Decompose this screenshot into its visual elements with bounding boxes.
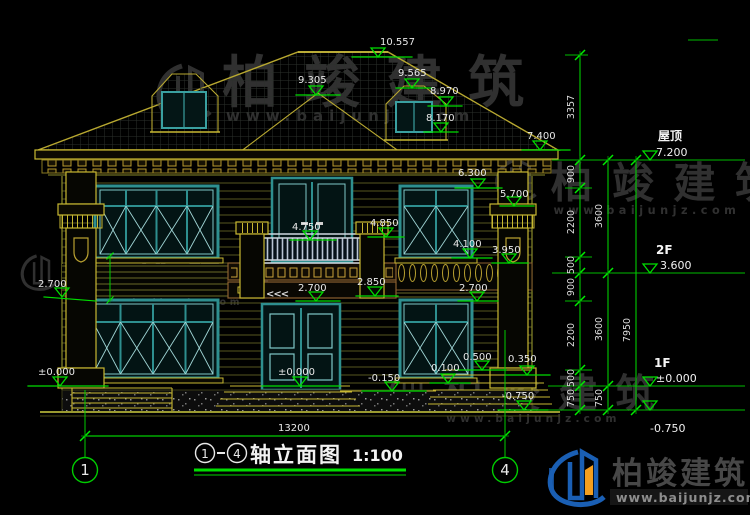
level-dormer-eave: 8.970 xyxy=(430,86,459,97)
level-win2-sill: 4.100 xyxy=(453,239,482,250)
level-roof-label: 屋顶 xyxy=(658,129,682,143)
brand-logo: 柏竣建筑 www.baijunjz.com xyxy=(549,452,750,505)
dim-2200-lower: 2200 xyxy=(566,323,577,347)
level-porch-c: 0.100 xyxy=(431,363,460,374)
axis-bubble-1: 1 xyxy=(80,461,90,479)
drawing-canvas: 柏竣建筑 www.baijunjz.com 柏竣建筑 www.baijunjz.… xyxy=(0,0,750,515)
brand-name: 柏竣建筑 xyxy=(612,456,748,492)
level-roof-value: 7.200 xyxy=(656,146,688,159)
dim-3357: 3357 xyxy=(566,95,577,119)
level-dormer-ridge: 9.565 xyxy=(398,68,427,79)
level-porch-ground: -0.750 xyxy=(502,391,534,402)
level-floor-zero: ±0.000 xyxy=(278,367,315,378)
balcony-pier-left xyxy=(236,222,268,298)
title-scale: 1:100 xyxy=(352,446,403,465)
level-band-right-pier: 2.850 xyxy=(357,277,386,288)
level-terrace: -0.150 xyxy=(368,373,400,384)
dim-500-lower: 500 xyxy=(566,369,577,387)
level-hip-apex: 9.305 xyxy=(298,75,327,86)
level-ground-value: -0.750 xyxy=(650,422,685,435)
right-dimension-chains: 3357 900 2200 500 900 2200 500 750 3600 … xyxy=(548,40,745,415)
brand-url: www.baijunjz.com xyxy=(616,490,750,505)
level-pier-cap: 5.700 xyxy=(500,189,529,200)
dim-2200-upper: 2200 xyxy=(566,210,577,234)
window-2f-left xyxy=(90,186,223,263)
brand-building-orange xyxy=(585,465,593,495)
dim-13200: 13200 xyxy=(278,423,310,434)
level-porch-b: 0.350 xyxy=(508,354,537,365)
level-2f-value: 3.600 xyxy=(660,259,692,272)
level-porch-a: 0.500 xyxy=(463,352,492,363)
level-dormer-sill: 8.170 xyxy=(426,113,455,124)
watermark-url: www.baijunjz.com xyxy=(446,413,620,425)
level-2f-label: 2F xyxy=(656,243,673,257)
title-axis-to: 4 xyxy=(233,447,241,461)
level-emblem: 3.950 xyxy=(492,245,521,256)
dim-7950: 7950 xyxy=(622,318,633,342)
level-left-zero: ±0.000 xyxy=(38,367,75,378)
title-axis-from: 1 xyxy=(201,447,209,461)
level-band-center: 2.700 xyxy=(298,283,327,294)
axis-bubble-4: 4 xyxy=(500,461,510,479)
cad-elevation-drawing: 柏竣建筑 www.baijunjz.com 柏竣建筑 www.baijunjz.… xyxy=(0,0,750,515)
balcony-railing xyxy=(260,234,370,263)
level-win1-top: 2.700 xyxy=(459,283,488,294)
dim-750-inner: 750 xyxy=(566,389,577,407)
level-1f-value: ±0.000 xyxy=(656,372,697,385)
level-1f-label: 1F xyxy=(654,356,671,370)
dim-3600-lower: 3600 xyxy=(594,317,605,341)
dim-500-upper: 500 xyxy=(566,256,577,274)
level-ledge-left: 2.700 xyxy=(38,279,67,290)
dim-900-lower: 900 xyxy=(566,278,577,296)
level-rail-top-right: 4.850 xyxy=(370,218,399,229)
drawing-title: 1 4 轴立面图 1:100 xyxy=(194,443,406,475)
level-eave: 7.400 xyxy=(527,131,556,142)
dim-3600-upper: 3600 xyxy=(594,204,605,228)
slope-marks: <<< xyxy=(266,289,289,300)
watermark-url: www.baijunjz.com xyxy=(554,204,741,217)
dim-900-upper: 900 xyxy=(566,165,577,183)
title-text: 轴立面图 xyxy=(250,443,342,467)
dim-750-mid: 750 xyxy=(594,389,605,407)
level-ridge: 10.557 xyxy=(380,37,415,48)
level-rail-top: 4.750 xyxy=(292,222,321,233)
level-win2-top: 6.300 xyxy=(458,168,487,179)
